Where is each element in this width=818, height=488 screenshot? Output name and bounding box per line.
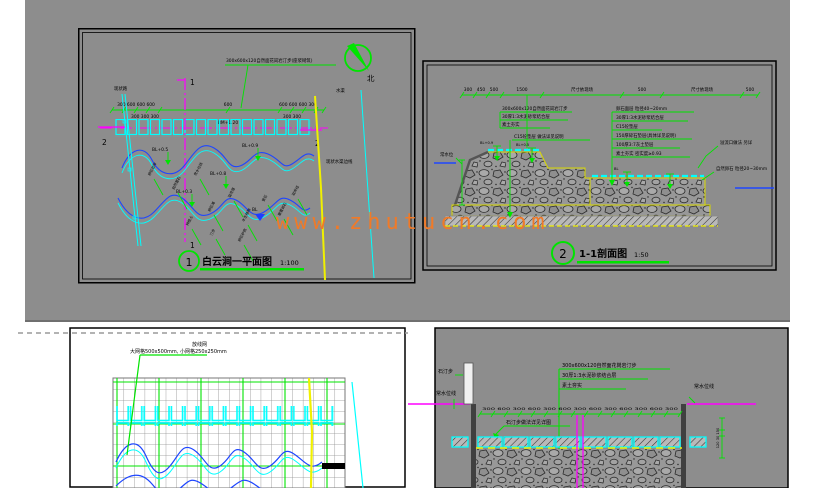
yellow-line-label: 水渠 (336, 87, 345, 94)
svg-text:石汀步: 石汀步 (438, 368, 453, 375)
svg-text:BL: BL (252, 207, 258, 213)
grid-note-title: 放线网 (192, 341, 207, 348)
svg-text:C15砼垫层: C15砼垫层 (616, 123, 638, 130)
north-label: 北 (367, 74, 375, 83)
svg-text:素土夯实 密实度≥0.93: 素土夯实 密实度≥0.93 (616, 150, 662, 157)
svg-text:1500: 1500 (516, 87, 527, 93)
svg-text:500: 500 (638, 87, 647, 93)
svg-text:300: 300 (464, 87, 473, 93)
svg-text:500: 500 (746, 87, 755, 93)
svg-text:1: 1 (190, 241, 195, 250)
plan-note: 300x600x120自然面花岗岩汀步(座浆砌筑) (226, 57, 313, 64)
waterline-label-group: 常水位 (440, 151, 462, 164)
svg-text:BL+0.9: BL+0.9 (480, 141, 494, 145)
watermark: www.zhutucn.com (276, 210, 550, 235)
layout-grid-sheet: 放线网 大网格500x500mm, 小网格250x250mm (18, 322, 410, 488)
plan-note-leader: 300x600x120自然面花岗岩汀步(座浆砌筑) (225, 57, 336, 108)
dim-mid: 600 (224, 102, 233, 108)
svg-text:常水位线: 常水位线 (192, 161, 203, 176)
section-drawing-panel: 300 450 500 1500 尺寸依现场 500 尺寸依现场 500 300… (422, 60, 778, 272)
grid-note-body: 大网格500x500mm, 小网格250x250mm (130, 348, 227, 355)
svg-text:BL+0.9: BL+0.9 (242, 143, 258, 149)
svg-text:尺寸依现场: 尺寸依现场 (571, 86, 594, 93)
svg-text:尺寸依现场: 尺寸依现场 (691, 86, 714, 93)
plan-title-number: 1 (186, 256, 193, 269)
svg-text:卵石面层 粒径40~20mm: 卵石面层 粒径40~20mm (616, 105, 667, 112)
svg-text:景石: 景石 (260, 193, 268, 202)
svg-text:常水位线: 常水位线 (436, 390, 456, 397)
svg-text:30厚1:3水泥砂浆结合层: 30厚1:3水泥砂浆结合层 (562, 372, 616, 379)
section-title-number: 2 (559, 247, 567, 261)
stepping-stones-section (452, 437, 706, 448)
section-title-text: 1-1剖面图 (579, 247, 627, 260)
dim-right: 600 600 600 300 (279, 102, 317, 108)
overflow-label: 溢流口做法 另详 (720, 139, 753, 146)
north-arrow: 北 (345, 43, 375, 83)
left-line-label: 现状路 (114, 85, 128, 92)
cad-image-viewer: 北 300x600x120自然面花岗岩汀步(座浆砌筑) 300 600 600 … (0, 0, 818, 488)
svg-text:卵石驳岸: 卵石驳岸 (146, 161, 157, 176)
section-title: 2 1-1剖面图 1:50 (552, 242, 669, 264)
dims-vert: 120 30 150 (716, 427, 720, 448)
svg-text:BL+0.5: BL+0.5 (152, 147, 168, 153)
detail-section-sheet: 石汀步 常水位线 常水位线 300x600x120自然面花岗岩汀步 30厚1:3… (408, 322, 818, 488)
right-label: 常水位线 (694, 383, 714, 390)
plan-title: 1 白云涧一平面图 1:100 (179, 251, 304, 271)
svg-text:BL+0.8: BL+0.8 (210, 171, 226, 177)
svg-text:30厚1:3水泥砂浆结合层: 30厚1:3水泥砂浆结合层 (502, 113, 550, 120)
svg-text:30厚1:3水泥砂浆结合层: 30厚1:3水泥砂浆结合层 (616, 114, 664, 121)
plan-title-scale: 1:100 (280, 259, 299, 267)
cobble-label: 自然卵石 粒径20~30mm (716, 165, 767, 172)
stepping-stone-row (115, 119, 311, 137)
section-dimension-line: 300 450 500 1500 尺寸依现场 500 尺寸依现场 500 (460, 86, 760, 98)
svg-text:素土夯实: 素土夯实 (562, 382, 582, 389)
post-column (464, 363, 473, 404)
plan-drawing-panel: 北 300x600x120自然面花岗岩汀步(座浆砌筑) 300 600 600 … (78, 28, 416, 284)
svg-text:1: 1 (190, 78, 195, 87)
svg-text:石汀步做法详见详图: 石汀步做法详见详图 (506, 419, 551, 426)
svg-text:卵石护底: 卵石护底 (236, 227, 247, 242)
stepping-stone-row (116, 406, 334, 426)
gravel-bed (476, 449, 681, 488)
svg-text:种植土: 种植土 (184, 214, 194, 226)
svg-text:常水位: 常水位 (440, 151, 454, 158)
section-title-scale: 1:50 (634, 251, 649, 259)
plan-title-text: 白云涧一平面图 (202, 255, 272, 268)
c15-note: C15砼垫层 做法详见说明 (514, 133, 564, 140)
svg-text:300x600x120自然面花岗岩汀步: 300x600x120自然面花岗岩汀步 (502, 105, 568, 112)
dims-run: 300 600 300 600 300 600 300 600 300 600 … (482, 407, 679, 411)
svg-text:驳岸线: 驳岸线 (290, 184, 300, 196)
svg-text:450: 450 (477, 87, 486, 93)
svg-text:100厚3:7灰土垫层: 100厚3:7灰土垫层 (616, 141, 654, 148)
svg-text:汀步: 汀步 (208, 227, 216, 236)
svg-text:BL: BL (614, 167, 618, 171)
right-side-labels: 溢流口做法 另详 自然卵石 粒径20~30mm (698, 139, 767, 180)
right-annotation-stack: 卵石面层 粒径40~20mm 30厚1:3水泥砂浆结合层 C15砼垫层 150厚… (609, 105, 694, 186)
svg-text:BL+0.5: BL+0.5 (516, 143, 529, 147)
right-line-label: 现状水渠边线 (326, 158, 353, 165)
scale-bar (322, 463, 345, 469)
svg-text:素土夯实: 素土夯实 (502, 121, 520, 128)
svg-text:150厚碎石垫层(具体详见说明): 150厚碎石垫层(具体详见说明) (616, 132, 676, 139)
svg-text:500: 500 (490, 87, 499, 93)
svg-text:300x600x120自然面花岗岩汀步: 300x600x120自然面花岗岩汀步 (562, 362, 637, 369)
svg-text:溢流堰: 溢流堰 (226, 186, 236, 198)
svg-text:2: 2 (102, 138, 107, 147)
